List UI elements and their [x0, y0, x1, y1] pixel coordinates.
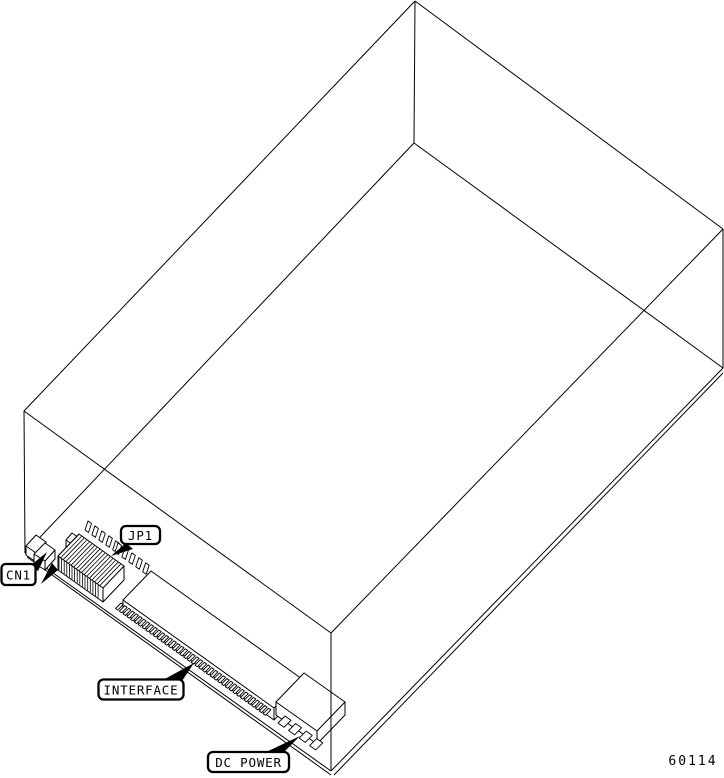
drive-diagram-page: CN1 JP1 INTERFACE DC POWER 60114 [0, 0, 724, 778]
callout-dc-power: DC POWER [208, 736, 300, 772]
figure-number: 60114 [668, 754, 717, 769]
cn1-label-text: CN1 [6, 568, 31, 583]
jp1-label-text: JP1 [128, 528, 153, 543]
case-wireframe [24, 1, 723, 775]
callout-jp1: JP1 [111, 526, 160, 556]
dc-power-label-text: DC POWER [215, 755, 282, 770]
interface-label-text: INTERFACE [104, 683, 179, 698]
base-plate-edge-lines [27, 373, 723, 775]
case-vertical-edges [24, 1, 723, 553]
case-bottom-back-edges [25, 143, 723, 553]
disk-drive-isometric-diagram: CN1 JP1 INTERFACE DC POWER 60114 [0, 0, 724, 778]
callout-interface: INTERFACE [99, 663, 195, 700]
case-bottom-front-edges [25, 368, 723, 771]
